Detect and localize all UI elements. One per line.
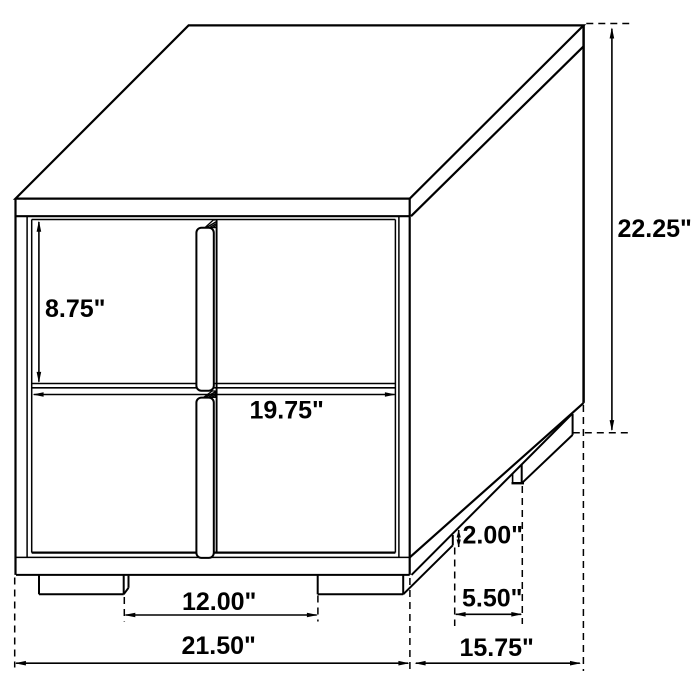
svg-text:15.75": 15.75" bbox=[460, 634, 534, 662]
svg-text:2.00": 2.00" bbox=[463, 522, 524, 550]
svg-text:22.25": 22.25" bbox=[618, 215, 692, 243]
svg-text:5.50": 5.50" bbox=[462, 584, 523, 612]
svg-text:12.00": 12.00" bbox=[182, 588, 256, 616]
svg-text:8.75": 8.75" bbox=[45, 295, 106, 323]
svg-text:21.50": 21.50" bbox=[182, 632, 256, 660]
svg-text:19.75": 19.75" bbox=[250, 397, 324, 425]
